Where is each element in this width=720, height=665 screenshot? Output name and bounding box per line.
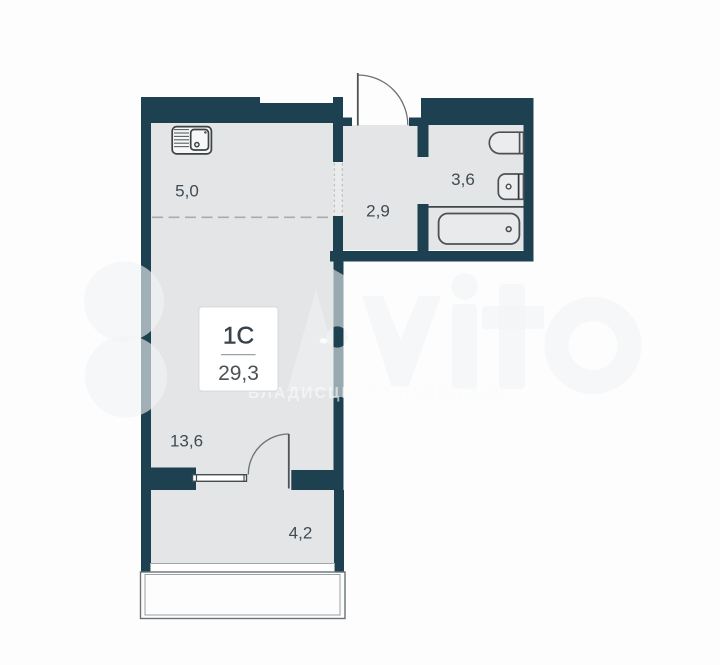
svg-text:5,0: 5,0 <box>175 182 199 201</box>
svg-text:1С: 1С <box>223 323 254 350</box>
svg-text:2,9: 2,9 <box>366 202 390 221</box>
svg-text:29,3: 29,3 <box>218 362 259 385</box>
svg-text:3,6: 3,6 <box>451 170 475 189</box>
svg-text:ВЛАДИСЦЕНТР НЕДВИЖИМ: ВЛАДИСЦЕНТР НЕДВИЖИМ <box>248 385 509 402</box>
svg-text:4,2: 4,2 <box>289 524 313 543</box>
svg-text:13,6: 13,6 <box>170 432 203 451</box>
